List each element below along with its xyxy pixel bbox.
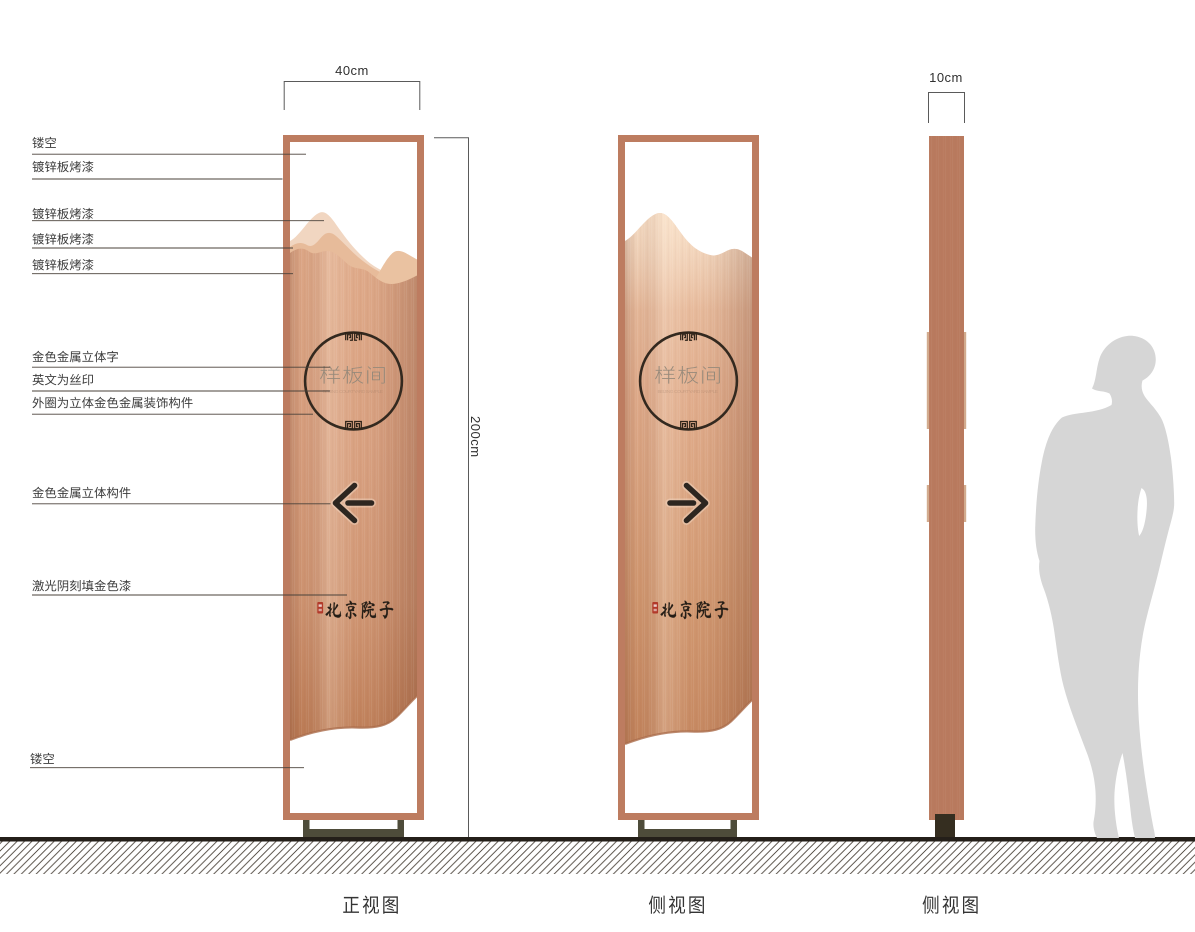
svg-text:200cm: 200cm [468, 416, 483, 458]
svg-text:40cm: 40cm [335, 63, 369, 78]
svg-text:10cm: 10cm [929, 70, 963, 85]
svg-text:BEIJING COURTYARD SAMPLE: BEIJING COURTYARD SAMPLE [323, 389, 385, 395]
svg-text:BEIJING COURTYARD SAMPLE: BEIJING COURTYARD SAMPLE [658, 389, 720, 395]
